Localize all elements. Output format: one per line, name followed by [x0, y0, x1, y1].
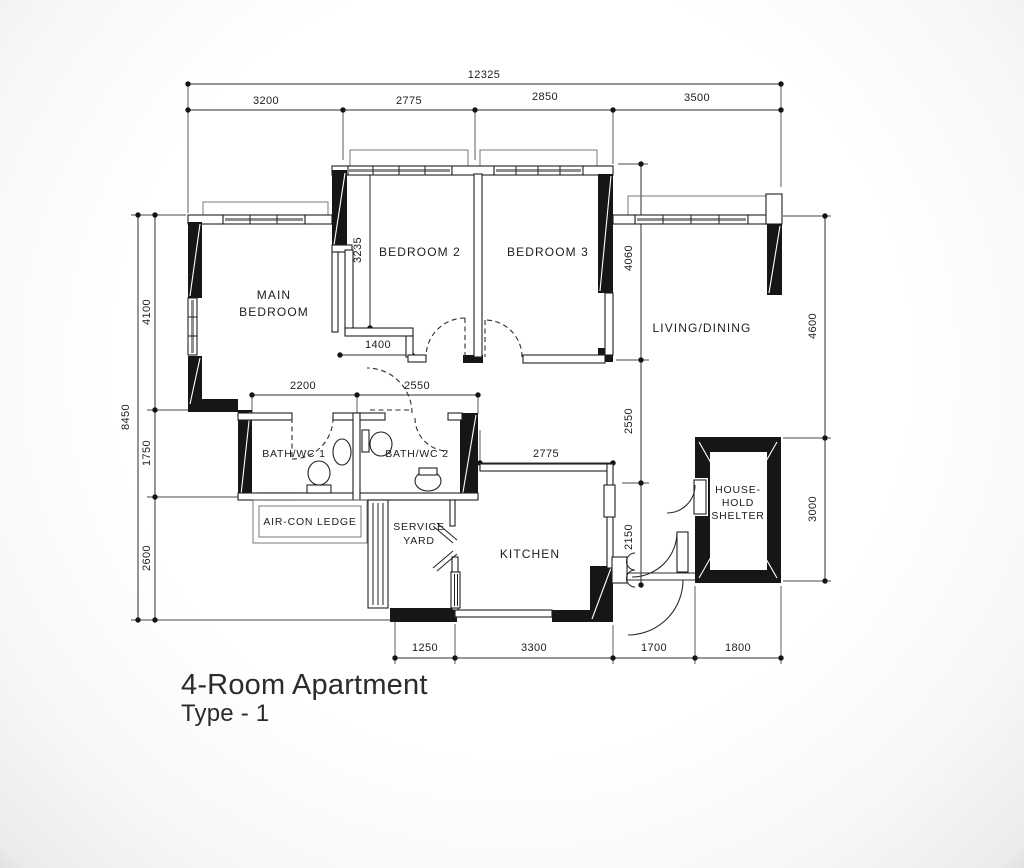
dim-left-4100: 4100: [141, 299, 153, 325]
dim-right-4600: 4600: [807, 313, 819, 339]
shelter-door-arc: [667, 485, 695, 513]
dim-bath2-2550: 2550: [404, 380, 430, 392]
room-label-kitchen: KITCHEN: [500, 547, 560, 561]
plan-title: 4-Room Apartment: [181, 669, 428, 701]
gate-swing-arc: [628, 580, 683, 635]
bath1-toilet: [308, 461, 330, 485]
room-label-service-yard-1: SERVICE: [393, 521, 445, 533]
shelter-door-leaf: [694, 480, 706, 514]
floor-plan-drawing: 12325 3200 2775 2850 3500 8450 4100 1750…: [0, 0, 1024, 868]
dim-top-2850: 2850: [532, 91, 558, 103]
floor-plan-page: 12325 3200 2775 2850 3500 8450 4100 1750…: [0, 0, 1024, 868]
room-label-bath2: BATH/WC 2: [385, 448, 449, 460]
dim-left-1750: 1750: [141, 440, 153, 466]
fixtures: [307, 430, 441, 493]
room-label-bath1: BATH/WC 1: [262, 448, 326, 460]
dim-right-3000: 3000: [807, 496, 819, 522]
room-label-aircon-ledge: AIR-CON LEDGE: [263, 516, 356, 528]
dim-col-4060: 4060: [623, 245, 635, 271]
gate-fold-arcs: [627, 553, 636, 587]
room-label-main-bedroom-1: MAIN: [257, 288, 291, 302]
plan-subtitle: Type - 1: [181, 700, 269, 727]
title-block: 4-Room Apartment Type - 1: [181, 669, 428, 727]
bath2-door-arc: [415, 418, 448, 451]
room-label-bedroom2: BEDROOM 2: [379, 245, 461, 259]
main-door-leaf: [677, 532, 688, 572]
dim-bed2-3235: 3235: [352, 237, 364, 263]
dim-bottom-1800: 1800: [725, 642, 751, 654]
dim-overall-left: 8450: [120, 404, 132, 430]
dim-bottom-1250: 1250: [412, 642, 438, 654]
room-labels: MAIN BEDROOM BEDROOM 2 BEDROOM 3 LIVING/…: [239, 245, 764, 561]
room-label-bedroom3: BEDROOM 3: [507, 245, 589, 259]
dim-kitchen-2775: 2775: [533, 448, 559, 460]
dim-left-2600: 2600: [141, 545, 153, 571]
dim-top-3500: 3500: [684, 92, 710, 104]
bedroom3-door-arc: [485, 320, 522, 357]
dim-1400: 1400: [365, 339, 391, 351]
room-label-shelter-1: HOUSE-: [715, 484, 761, 496]
dim-bottom-3300: 3300: [521, 642, 547, 654]
room-label-shelter-2: HOLD: [722, 497, 754, 509]
bedroom2-door-arc: [426, 318, 465, 357]
room-label-shelter-3: SHELTER: [711, 510, 764, 522]
window-projections: [203, 150, 767, 215]
dim-col-2550: 2550: [623, 408, 635, 434]
dim-bottom-1700: 1700: [641, 642, 667, 654]
bath1-basin: [333, 439, 351, 465]
dim-overall-top: 12325: [468, 69, 501, 81]
dim-top-2775: 2775: [396, 95, 422, 107]
room-label-main-bedroom-2: BEDROOM: [239, 305, 309, 319]
walls: [188, 170, 782, 622]
room-label-living-dining: LIVING/DINING: [653, 321, 752, 335]
dim-col-2150: 2150: [623, 524, 635, 550]
room-label-service-yard-2: YARD: [403, 535, 435, 547]
dim-bath1-2200: 2200: [290, 380, 316, 392]
dim-top-3200: 3200: [253, 95, 279, 107]
main-door-arc: [632, 532, 677, 577]
